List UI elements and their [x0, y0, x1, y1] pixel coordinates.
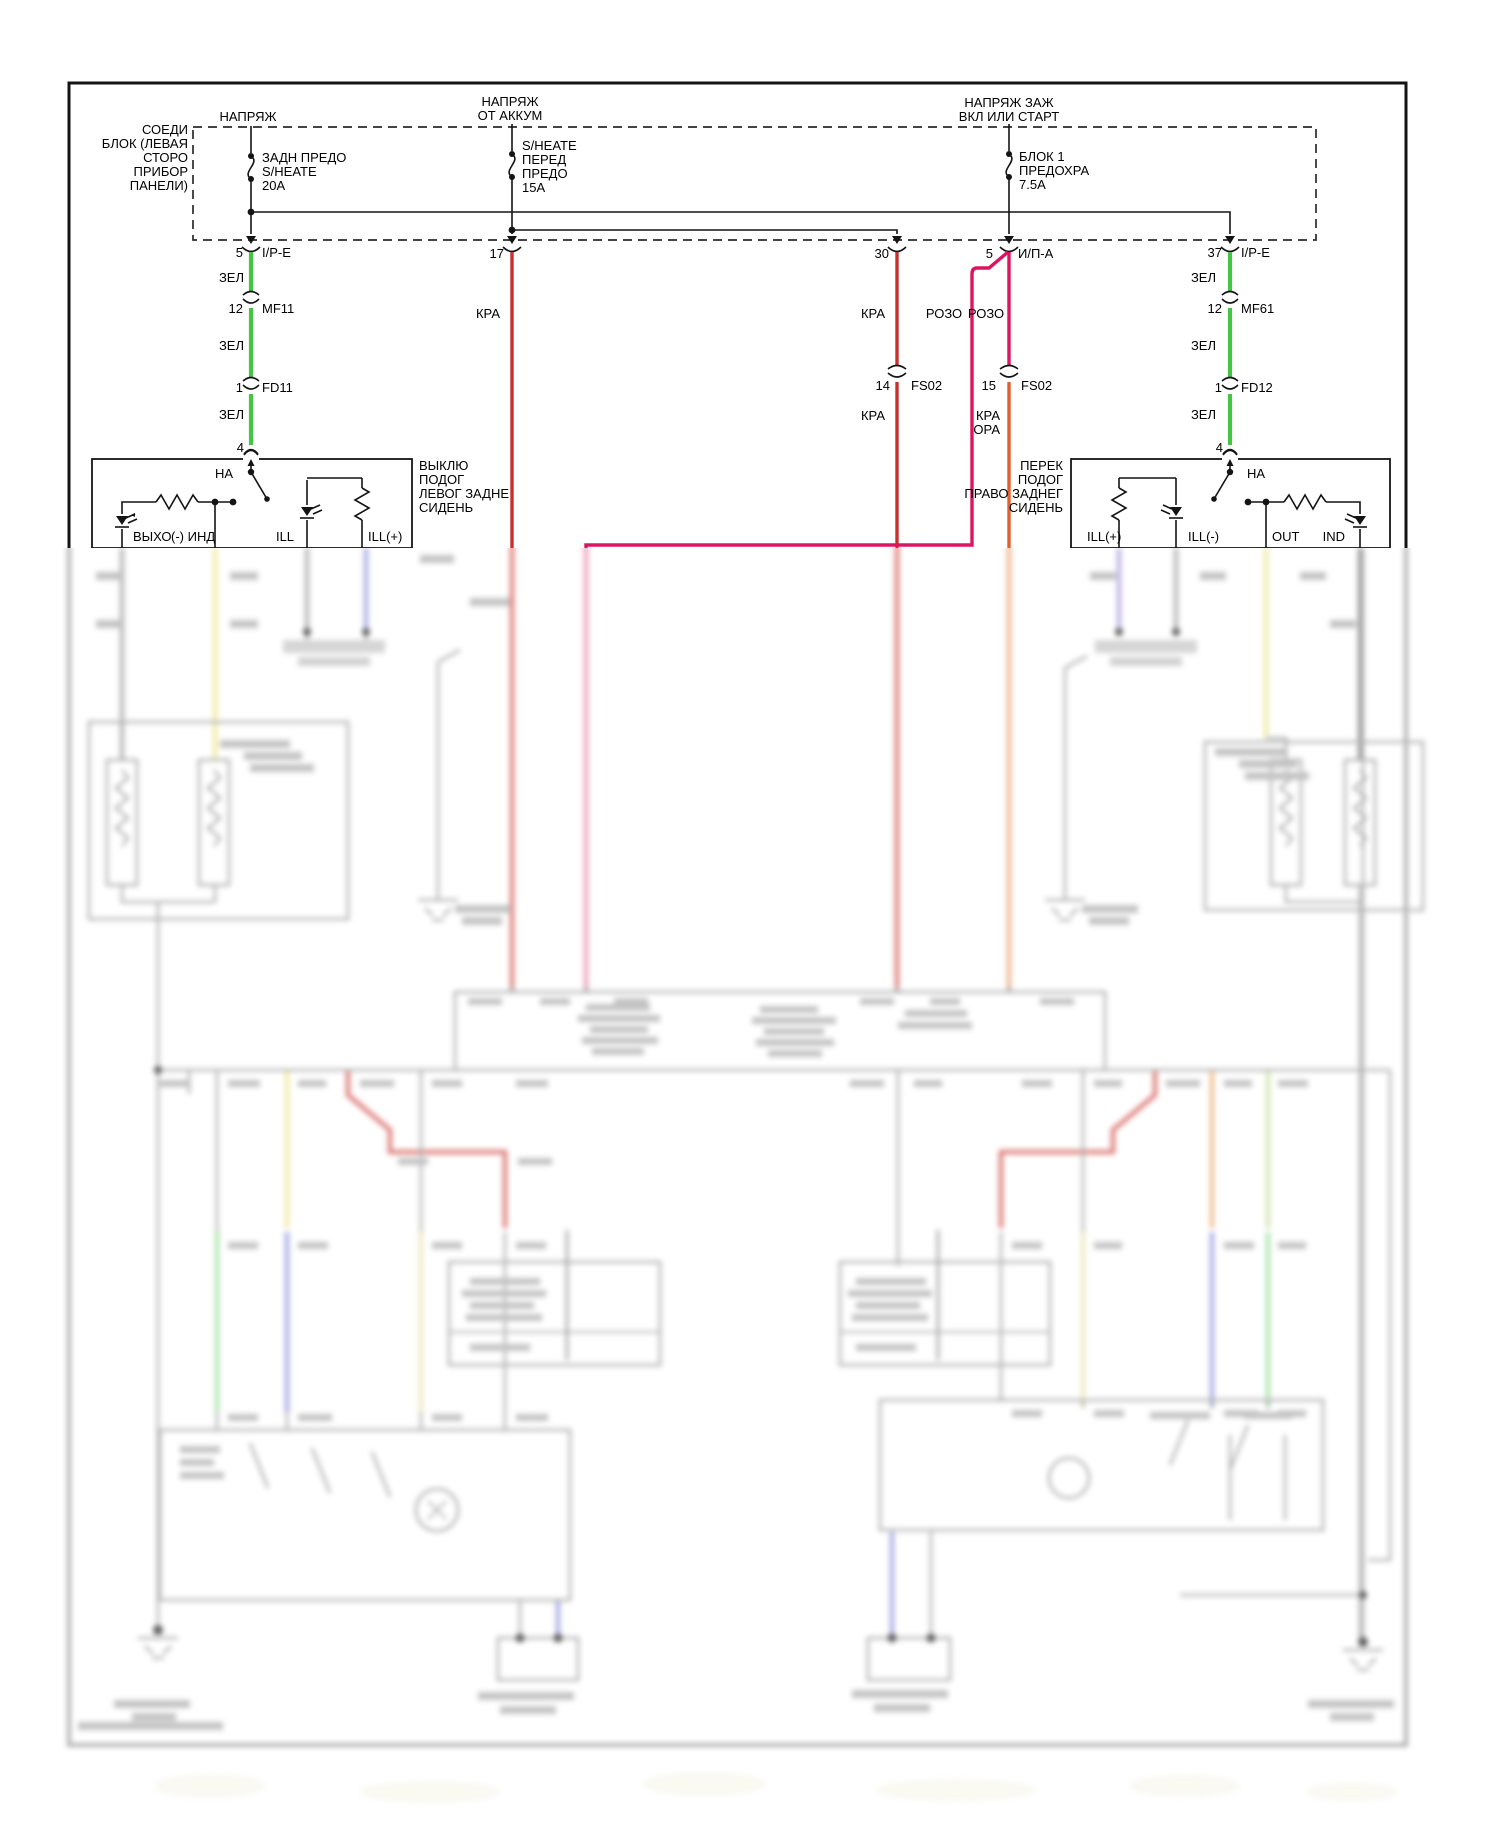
terminal-4-left: 4 — [237, 440, 244, 455]
fuse-1 — [242, 126, 260, 252]
left-pin-vyho: ВЫХО — [133, 529, 172, 544]
pin-37: 37 — [1208, 245, 1222, 260]
wire-kra-4: КРА — [976, 408, 1000, 423]
ground-symbols — [138, 900, 1383, 1670]
left-pin-ill: ILL — [276, 529, 294, 544]
wire-kra-3: КРА — [861, 408, 885, 423]
diagram-blurred-area — [0, 548, 1500, 1828]
pin-30: 30 — [875, 246, 889, 261]
wire-kra-1: КРА — [476, 306, 500, 321]
pin-17: 17 — [490, 246, 504, 261]
wire-zel-4: ЗЕЛ — [1191, 270, 1216, 285]
left-pin-illp: ILL(+) — [368, 529, 402, 544]
junction-block-box — [193, 127, 1316, 240]
pin-1-right: 1 — [1215, 380, 1222, 395]
border-blurred — [69, 548, 1406, 1745]
pin-5-left: 5 — [236, 245, 243, 260]
wire-kra-2: КРА — [861, 306, 885, 321]
ground-left-loop — [418, 900, 458, 920]
fuse1-line1: ЗАДН ПРЕДО — [262, 150, 346, 165]
wire-rozo-2: РОЗО — [968, 306, 1004, 321]
diagram-sharp-area: НАПРЯЖ НАПРЯЖ ОТ АККУМ НАПРЯЖ ЗАЖ ВКЛ ИЛ… — [0, 0, 1500, 548]
wire-na-left: НА — [215, 466, 233, 481]
blurred-text-blobs — [78, 555, 1394, 1730]
left-green-column — [243, 252, 259, 454]
junction-label-1: СОЕДИ — [142, 122, 188, 137]
fuse2-line4: 15A — [522, 180, 545, 195]
right-pin-ind: IND — [1323, 529, 1345, 544]
pin-12-right: 12 — [1208, 301, 1222, 316]
ground-right-loop — [1045, 900, 1085, 920]
fuse1-line2: S/HEATE — [262, 164, 317, 179]
wire-zel-3: ЗЕЛ — [219, 407, 244, 422]
conn-fs02-b: FS02 — [1021, 378, 1052, 393]
supply3-line1: НАПРЯЖ ЗАЖ — [964, 95, 1053, 110]
supply2-line2: ОТ АККУМ — [478, 108, 543, 123]
wire-zel-6: ЗЕЛ — [1191, 407, 1216, 422]
pin-15: 15 — [982, 378, 996, 393]
left-switch-title-4: СИДЕНЬ — [419, 500, 473, 515]
supply3-line2: ВКЛ ИЛИ СТАРТ — [959, 109, 1059, 124]
conn-ipe-right: I/P-E — [1241, 245, 1270, 260]
fuse3-line1: БЛОК 1 — [1019, 149, 1065, 164]
supply2-line1: НАПРЯЖ — [481, 94, 538, 109]
right-switch-title-2: ПОДОГ — [1018, 472, 1063, 487]
supply1-label: НАПРЯЖ — [219, 109, 276, 124]
pin-1-left: 1 — [236, 380, 243, 395]
right-pin-illp: ILL(+) — [1087, 529, 1121, 544]
blurred-schematic — [0, 548, 1500, 1828]
pin-5-right: 5 — [986, 246, 993, 261]
right-switch-title-3: ПРАВО ЗАДНЕГ — [964, 486, 1063, 501]
wire-rozo-1: РОЗО — [926, 306, 962, 321]
left-pin-ind: (-) ИНД — [171, 529, 215, 544]
right-pin-illm: ILL(-) — [1188, 529, 1219, 544]
wire-zel-5: ЗЕЛ — [1191, 338, 1216, 353]
pin-14: 14 — [876, 378, 890, 393]
junction-label-4: ПРИБОР — [133, 164, 188, 179]
right-switch-title-4: СИДЕНЬ — [1009, 500, 1063, 515]
pin-12-left: 12 — [229, 301, 243, 316]
terminal-4-right: 4 — [1216, 440, 1223, 455]
wire-zel-1: ЗЕЛ — [219, 270, 244, 285]
left-switch-title-2: ПОДОГ — [419, 472, 464, 487]
fuse2-line3: ПРЕДО — [522, 166, 568, 181]
junction-label-5: ПАНЕЛИ) — [130, 178, 188, 193]
conn-mf61: MF61 — [1241, 301, 1274, 316]
fuse-2 — [503, 124, 521, 252]
left-switch-title-3: ЛЕВОГ ЗАДНЕ — [419, 486, 509, 501]
junction-distribution — [251, 212, 1239, 252]
power-wires — [512, 252, 1018, 548]
conn-ipe-left: I/P-E — [262, 245, 291, 260]
fuse2-line2: ПЕРЕД — [522, 152, 566, 167]
fuse-3 — [1000, 124, 1018, 252]
junction-label-2: БЛОК (ЛЕВАЯ — [102, 136, 188, 151]
conn-ipa: И/П-А — [1018, 246, 1054, 261]
ground-bottom-right — [1343, 1637, 1383, 1670]
bottom-smudges — [155, 1772, 1397, 1803]
conn-fs02-a: FS02 — [911, 378, 942, 393]
conn-mf11: MF11 — [262, 301, 294, 316]
fuse1-line3: 20A — [262, 178, 285, 193]
labels: НАПРЯЖ НАПРЯЖ ОТ АККУМ НАПРЯЖ ЗАЖ ВКЛ ИЛ… — [102, 94, 1345, 544]
wire-na-right: НА — [1247, 466, 1265, 481]
right-pin-out: OUT — [1272, 529, 1300, 544]
fuse2-line1: S/HEATE — [522, 138, 577, 153]
ground-bottom-left — [138, 1625, 178, 1658]
right-switch-title-1: ПЕРЕК — [1020, 458, 1063, 473]
sharp-schematic: НАПРЯЖ НАПРЯЖ ОТ АККУМ НАПРЯЖ ЗАЖ ВКЛ ИЛ… — [0, 0, 1500, 548]
blurred-colored-wires — [122, 548, 1360, 1638]
wire-ora: ОРА — [973, 422, 1000, 437]
right-green-column — [1222, 252, 1238, 454]
fuse3-line3: 7.5A — [1019, 177, 1046, 192]
conn-fd12: FD12 — [1241, 380, 1273, 395]
junction-label-3: СТОРО — [143, 150, 188, 165]
wiring-diagram-page: НАПРЯЖ НАПРЯЖ ОТ АККУМ НАПРЯЖ ЗАЖ ВКЛ ИЛ… — [0, 0, 1500, 1828]
left-switch-title-1: ВЫКЛЮ — [419, 458, 468, 473]
wire-zel-2: ЗЕЛ — [219, 338, 244, 353]
fuse3-line2: ПРЕДОХРА — [1019, 163, 1089, 178]
conn-fd11: FD11 — [262, 380, 293, 395]
